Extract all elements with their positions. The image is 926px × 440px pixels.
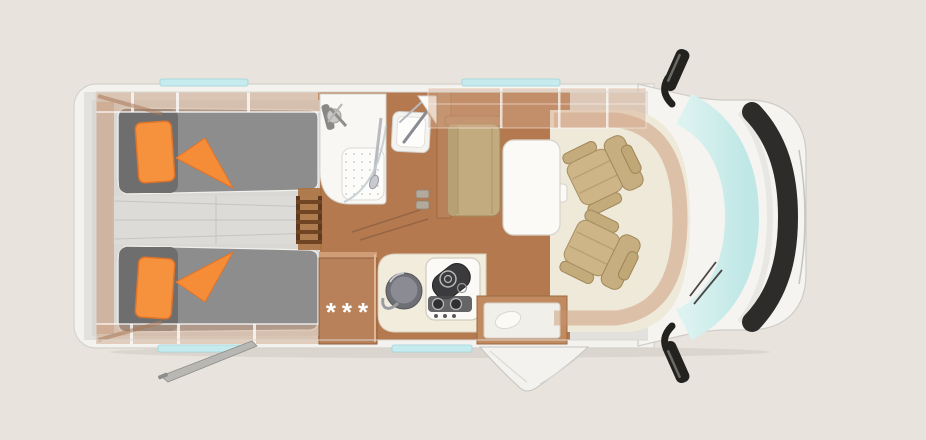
bed-ladder: [296, 188, 322, 250]
pillow-top: [135, 121, 175, 183]
floorplan-image: ***: [0, 0, 926, 440]
table: [503, 140, 567, 235]
door-handle: [416, 190, 429, 198]
burner: [433, 299, 444, 310]
motorhome-floorplan: ***: [0, 0, 926, 440]
stove: [426, 258, 480, 320]
center-aisle: [112, 196, 320, 244]
entry-step: [477, 296, 567, 344]
kitchen-counter: [378, 254, 486, 332]
twin-bed-top: [118, 108, 318, 194]
pillow-bottom: [135, 257, 175, 319]
shower-cabin: [320, 94, 386, 204]
fridge-rating-stars: ***: [326, 297, 374, 327]
burner: [451, 299, 462, 310]
bench-seat: [445, 116, 503, 216]
twin-bed-bottom: [118, 246, 318, 332]
overhead-cabinets: [428, 88, 646, 128]
fridge: ***: [319, 252, 377, 344]
